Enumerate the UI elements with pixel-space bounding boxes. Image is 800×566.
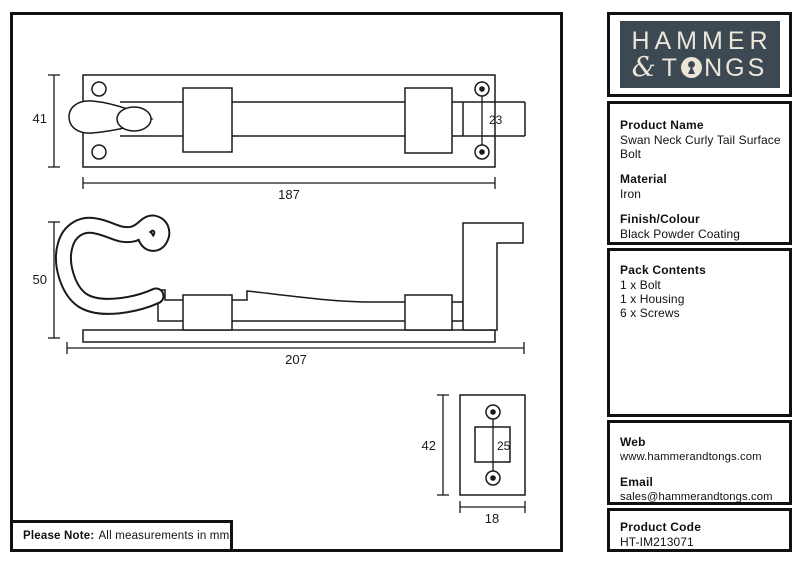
dim-label-side-height: 50 (33, 272, 47, 287)
spec-sheet-page: 41 187 23 50 (0, 0, 800, 566)
guide-block-1 (183, 88, 232, 152)
guide-block-2-side (405, 295, 452, 330)
dim-label-keeper-height: 42 (422, 438, 436, 453)
dim-label-side-length: 207 (285, 352, 307, 367)
dimension-42 (437, 395, 449, 495)
dim-label-bolt-hole: 25 (497, 439, 511, 453)
screw-hole (92, 145, 106, 159)
technical-drawing: 41 187 23 50 (0, 0, 800, 566)
bolt-top-view: 41 187 23 (33, 75, 525, 202)
keeper-plate-view: 25 42 18 (422, 395, 525, 526)
screw-hole (92, 82, 106, 96)
bolt-side-view: 50 207 (33, 222, 524, 367)
dim-label-plate-height: 41 (33, 111, 47, 126)
baseplate (83, 330, 495, 342)
dim-label-plate-length: 187 (278, 187, 300, 202)
measurement-note: Please Note: All measurements in mm (10, 520, 233, 552)
guide-block-2 (405, 88, 452, 153)
dim-label-screw-spacing: 23 (489, 113, 503, 127)
knob-ball (117, 107, 151, 131)
dimension-41 (48, 75, 60, 167)
note-text: All measurements in mm (98, 530, 229, 542)
swan-neck (463, 223, 523, 330)
note-label: Please Note: (23, 530, 94, 542)
dim-label-keeper-width: 18 (485, 511, 499, 526)
guide-block-1-side (183, 295, 232, 330)
curly-tail-body (64, 223, 162, 306)
